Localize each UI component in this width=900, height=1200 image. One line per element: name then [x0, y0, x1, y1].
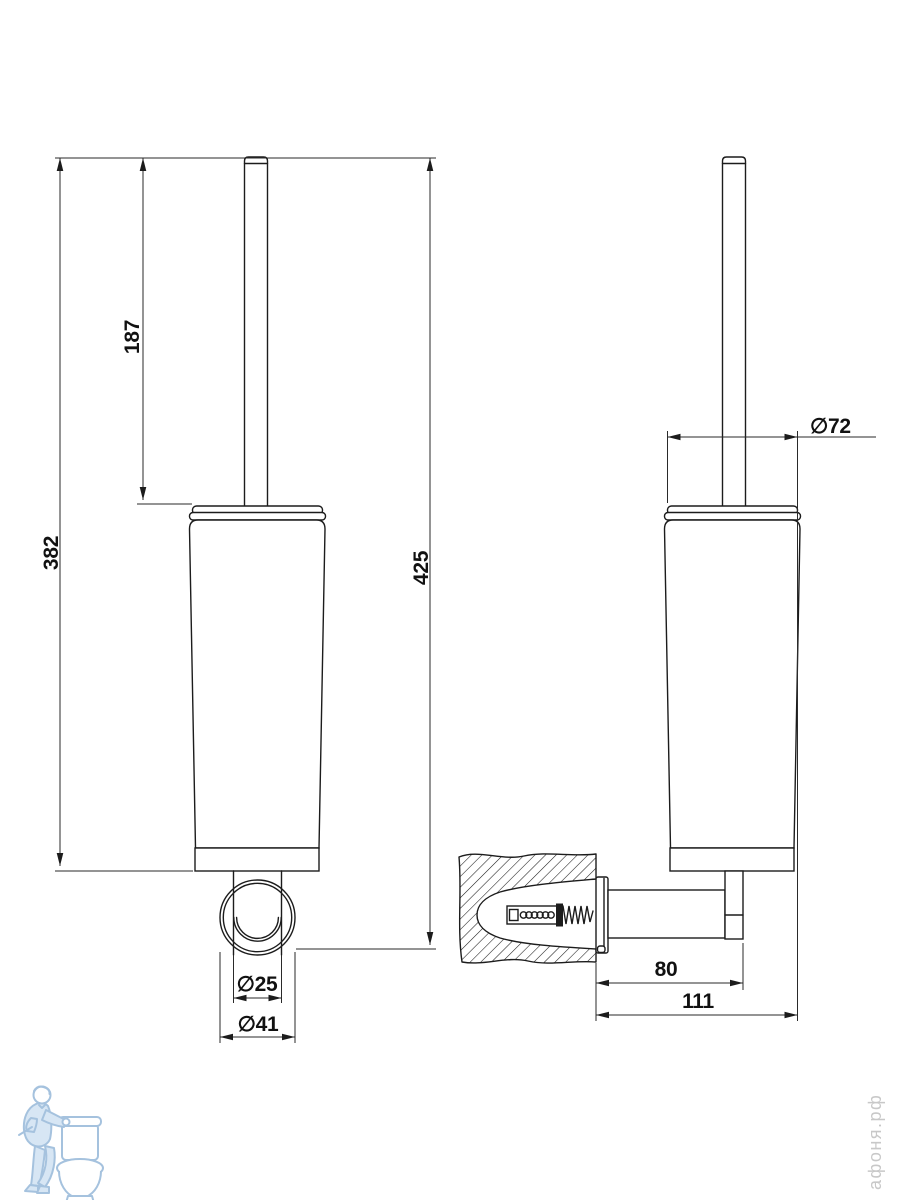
front-cup-body — [190, 520, 326, 848]
dim-post-diameter: ∅25 — [234, 955, 282, 1003]
bracket-tab — [725, 871, 743, 939]
side-lid — [665, 506, 801, 520]
side-bottom-band — [670, 848, 794, 871]
dim-label-41: ∅41 — [238, 1013, 279, 1036]
front-handle-rod — [245, 157, 268, 507]
plumber-logo — [19, 1087, 103, 1200]
dim-label-25: ∅25 — [237, 973, 278, 996]
dim-body-bottom-height: 382 — [40, 158, 193, 871]
side-handle-rod — [723, 157, 746, 507]
dim-label-72: ∅72 — [810, 415, 851, 438]
technical-drawing-canvas: 382 187 425 ∅25 ∅41 — [0, 0, 900, 1200]
dim-label-425: 425 — [410, 550, 433, 585]
side-cup-body — [665, 520, 801, 848]
front-bottom-band — [195, 848, 319, 871]
dim-handle-height: 187 — [121, 158, 192, 504]
front-lid — [190, 506, 326, 520]
front-rosette-ring — [220, 880, 295, 955]
mounting-arm — [608, 890, 725, 938]
site-watermark: афоня.рф — [865, 1094, 885, 1190]
side-view — [459, 157, 801, 963]
toilet-icon — [57, 1117, 103, 1200]
front-view — [190, 157, 326, 955]
dim-label-382: 382 — [40, 536, 63, 570]
wall-section — [459, 854, 596, 963]
dim-overall-projection: 111 — [596, 963, 798, 1021]
dim-label-80: 80 — [655, 958, 678, 981]
dim-label-111: 111 — [682, 990, 714, 1013]
dim-arm-projection: 80 — [596, 943, 743, 990]
drawing-page: 382 187 425 ∅25 ∅41 — [0, 0, 900, 1200]
wall-flange — [596, 877, 608, 953]
dim-label-187: 187 — [121, 320, 144, 354]
